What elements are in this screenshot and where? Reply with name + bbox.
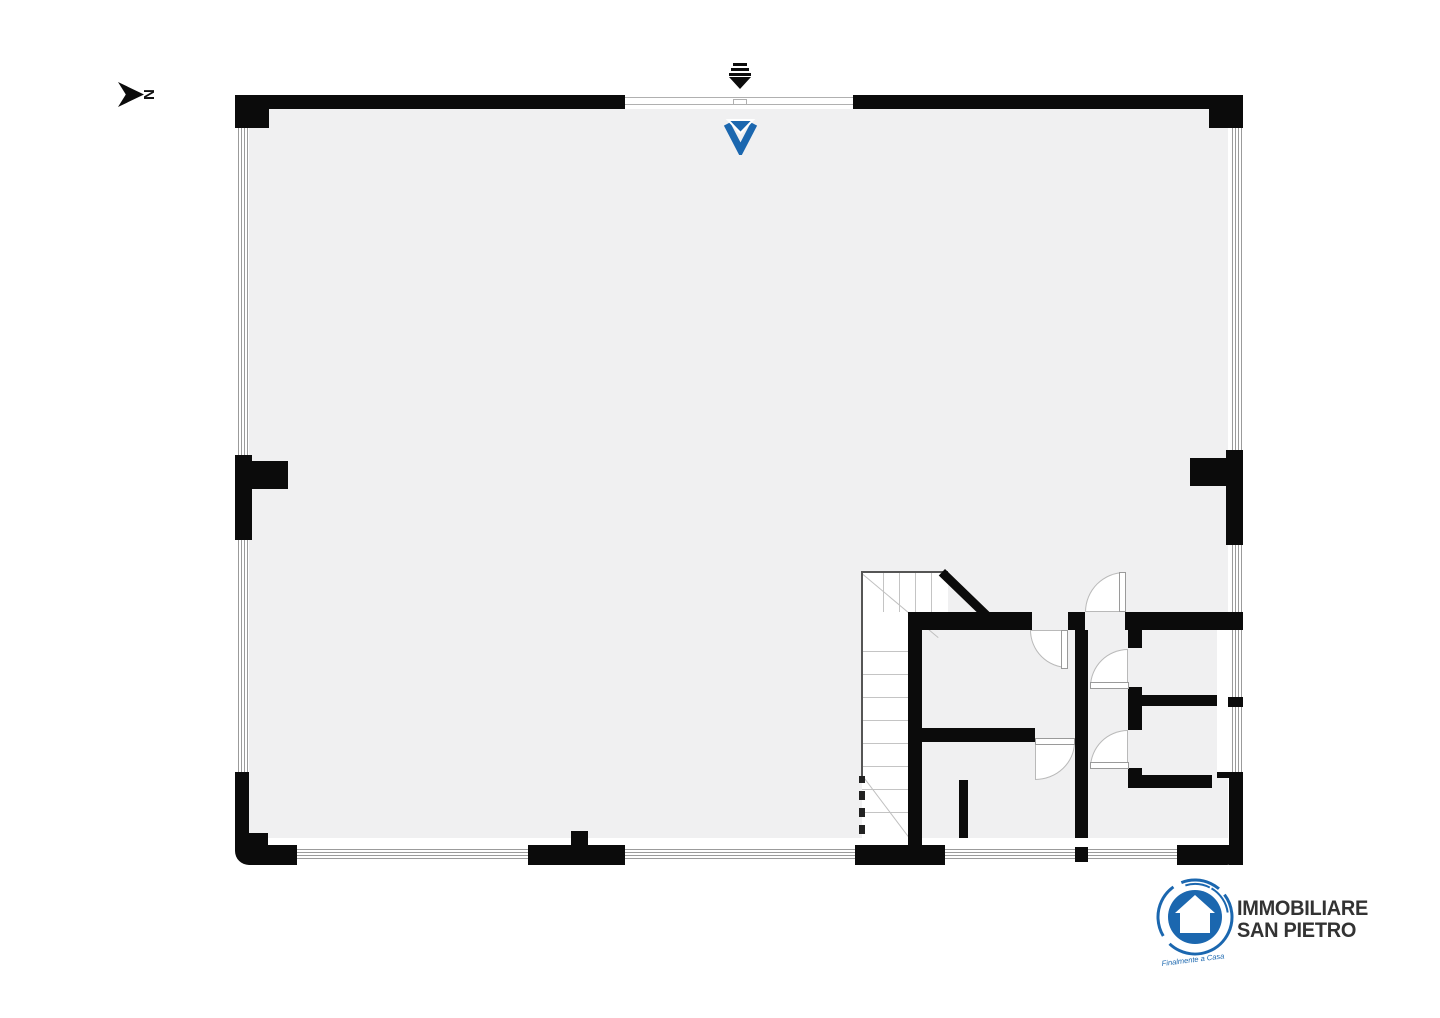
corner-block-top-left [235, 95, 269, 128]
pillar-left [235, 455, 252, 540]
bottom-wall-body [297, 840, 1228, 849]
exterior-wall-top-right [853, 95, 1243, 109]
stair-treads-top [868, 573, 946, 612]
corner-block-top-right [1209, 95, 1243, 128]
window-bottom-4 [1088, 849, 1177, 861]
right-lower-cap [1217, 772, 1243, 778]
interior-wall-h5 [1142, 695, 1217, 706]
entry-arrow-bar [733, 63, 747, 66]
stair-outline-left [861, 572, 863, 776]
door-leaf-room-e [1090, 682, 1129, 689]
pillar-left-stub [252, 461, 288, 489]
door-leaf-room-c [1035, 738, 1075, 745]
stair-outline-top [861, 571, 948, 573]
floorplan-page: N [0, 0, 1440, 1018]
interior-wall-h2 [1128, 775, 1212, 788]
door-leaf-room-a [1061, 630, 1068, 669]
interior-wall-h1c [1125, 612, 1243, 630]
bottom-wall-stub [571, 831, 588, 847]
interior-wall-v3b [1128, 687, 1142, 730]
window-bottom-3 [945, 849, 1075, 861]
corner-block-bottom-left [235, 845, 297, 865]
exterior-wall-top-left [235, 95, 625, 109]
brand-name-line1: IMMOBILIARE [1237, 898, 1368, 919]
door-leaf-room-f [1090, 762, 1129, 769]
interior-wall-h3 [922, 728, 1035, 742]
window-bottom-2 [625, 849, 855, 861]
interior-wall-v1 [908, 612, 922, 845]
bottom-wall-pillar [1075, 847, 1088, 862]
entry-arrow-bar [729, 73, 751, 76]
interior-wall-stub [959, 780, 968, 838]
door-leaf-corridor-entry [1119, 572, 1126, 612]
corner-block-bottom-right [1177, 845, 1243, 865]
entry-arrow-head [729, 77, 751, 89]
bottom-wall-segment-1 [528, 845, 625, 865]
entrance-panel-notch [733, 99, 747, 105]
brand-name-line2: SAN PIETRO [1237, 920, 1356, 941]
bottom-wall-segment-2 [855, 845, 945, 865]
interior-wall-v3a [1128, 630, 1142, 648]
window-left-upper [236, 128, 249, 455]
right-wall-cross-stub [1228, 697, 1243, 707]
entry-arrow-bar [731, 68, 749, 71]
right-wall-body [1217, 630, 1228, 772]
pillar-right [1226, 450, 1243, 545]
interior-wall-h1a [908, 612, 1032, 630]
window-right-upper [1230, 128, 1243, 450]
window-bottom-1 [297, 849, 528, 861]
compass-north-label: N [140, 89, 157, 100]
interior-wall-v2 [1075, 630, 1088, 838]
v-marker-icon[interactable] [723, 117, 758, 155]
stair-dashed-edge [859, 776, 865, 834]
interior-wall-h1b [1068, 612, 1085, 630]
window-right-mid [1230, 545, 1243, 612]
pillar-right-stub [1190, 458, 1226, 486]
window-left-lower [236, 540, 249, 772]
